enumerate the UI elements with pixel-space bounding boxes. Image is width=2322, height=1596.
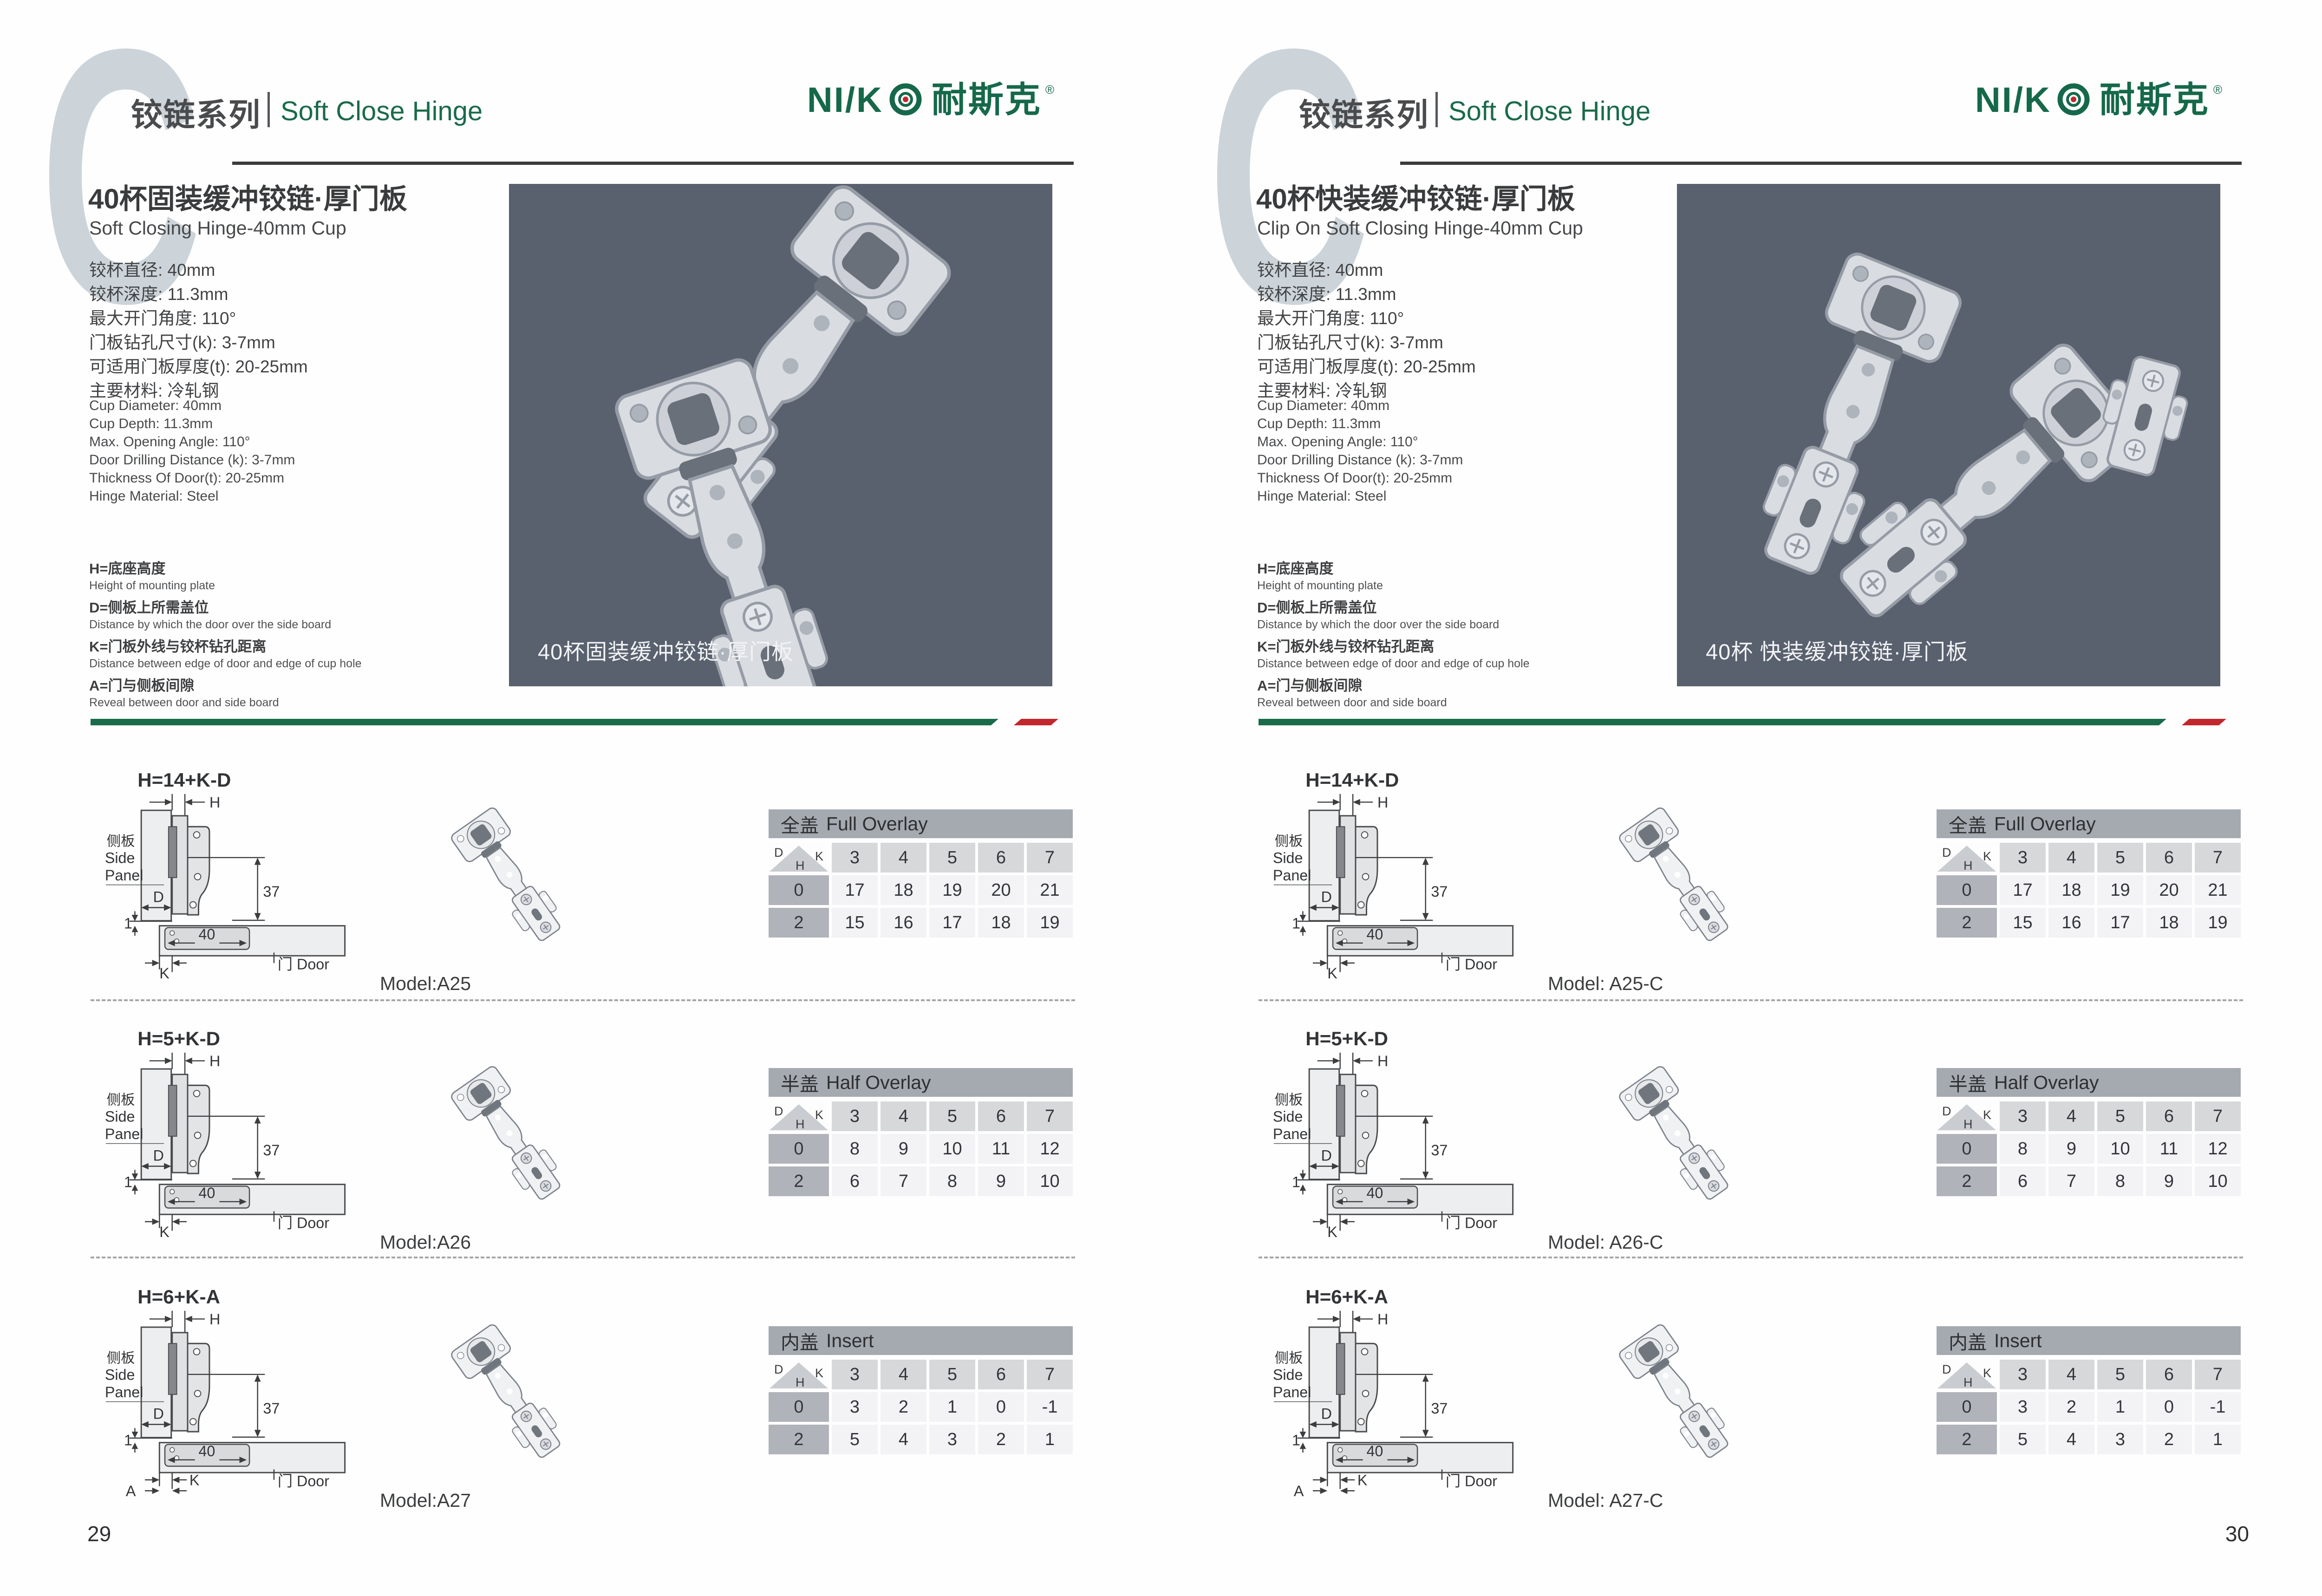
k-column-header: 6 bbox=[978, 1101, 1024, 1131]
svg-text:K: K bbox=[159, 965, 170, 982]
svg-text:K: K bbox=[1983, 849, 1991, 863]
overlay-value-cell: 16 bbox=[881, 908, 926, 938]
mounting-diagram: H=14+K-D H 侧板 Side Panel 37 D 1 bbox=[1261, 769, 1535, 982]
corner-cell: D K H bbox=[1937, 1101, 1997, 1131]
overlay-value-cell: 8 bbox=[832, 1134, 878, 1164]
hinge-illustration bbox=[385, 1288, 618, 1479]
logo-target-icon bbox=[2057, 83, 2090, 116]
overlay-value-cell: -1 bbox=[1027, 1392, 1073, 1422]
svg-text:K: K bbox=[815, 849, 823, 863]
overlay-value-cell: 18 bbox=[2048, 875, 2094, 905]
hinge-illustration bbox=[385, 1030, 618, 1220]
overlay-table: 全盖 Full Overlay D K H 345670171819202121… bbox=[1937, 809, 2241, 938]
overlay-value-cell: 11 bbox=[978, 1134, 1024, 1164]
spec-line-zh: 铰杯深度: 11.3mm bbox=[89, 282, 308, 306]
legend-en: Height of mounting plate bbox=[89, 579, 362, 593]
hinge-variant-section: H=14+K-D H 侧板 Side Panel 37 D 1 bbox=[0, 769, 1168, 1027]
overlay-title-zh: 半盖 bbox=[1949, 1068, 1987, 1096]
overlay-value-cell: 3 bbox=[832, 1392, 878, 1422]
overlay-title-zh: 内盖 bbox=[781, 1327, 819, 1355]
svg-text:H: H bbox=[209, 1053, 220, 1069]
k-column-header: 6 bbox=[2146, 843, 2192, 873]
k-column-header: 5 bbox=[2097, 843, 2143, 873]
section-divider bbox=[1259, 1257, 2243, 1258]
overlay-value-cell: 8 bbox=[2000, 1134, 2046, 1164]
svg-text:门 Door: 门 Door bbox=[278, 1473, 329, 1490]
k-column-header: 3 bbox=[2000, 843, 2046, 873]
product-title-en: Clip On Soft Closing Hinge-40mm Cup bbox=[1257, 217, 1583, 239]
h-row-header: 2 bbox=[769, 908, 829, 938]
overlay-table: 半盖 Half Overlay D K H 345670891011122678… bbox=[769, 1068, 1073, 1196]
svg-text:D: D bbox=[1942, 846, 1951, 860]
overlay-title-en: Full Overlay bbox=[1994, 813, 2096, 835]
photo-caption: 40杯 快装缓冲铰链·厚门板 bbox=[1706, 634, 1968, 666]
spec-line-zh: 最大开门角度: 110° bbox=[89, 306, 308, 331]
spec-line-zh: 铰杯深度: 11.3mm bbox=[1257, 282, 1476, 306]
hinge-graphic bbox=[450, 1065, 573, 1209]
svg-text:H: H bbox=[796, 859, 805, 873]
svg-text:1: 1 bbox=[124, 1432, 132, 1449]
svg-text:Panel: Panel bbox=[105, 1126, 143, 1142]
svg-text:H: H bbox=[1377, 1053, 1388, 1069]
corner-cell: D K H bbox=[769, 1360, 829, 1389]
overlay-table: 内盖 Insert D K H 3456703210-1254321 bbox=[769, 1326, 1073, 1454]
overlay-value-cell: 15 bbox=[832, 908, 878, 938]
overlay-table-grid: D K H 3456703210-1254321 bbox=[1937, 1360, 2241, 1454]
catalog-page-left: C 铰链系列 Soft Close Hinge NI/K 耐斯克 ® 40杯固装… bbox=[0, 0, 1168, 1596]
svg-text:D: D bbox=[1942, 1362, 1951, 1376]
h-row-header: 0 bbox=[769, 1134, 829, 1164]
legend-en: Reveal between door and side board bbox=[89, 696, 362, 710]
overlay-value-cell: 19 bbox=[929, 875, 975, 905]
legend-en: Distance between edge of door and edge o… bbox=[89, 657, 362, 671]
overlay-value-cell: 5 bbox=[832, 1425, 878, 1454]
mounting-diagram: H=5+K-D H 侧板 Side Panel 37 D 1 bbox=[1261, 1027, 1535, 1241]
overlay-value-cell: 11 bbox=[2146, 1134, 2192, 1164]
svg-text:37: 37 bbox=[263, 1400, 280, 1417]
spec-line-zh: 最大开门角度: 110° bbox=[1257, 306, 1476, 331]
diagram-formula: H=6+K-A bbox=[1305, 1286, 1388, 1308]
overlay-value-cell: 2 bbox=[881, 1392, 926, 1422]
svg-text:侧板: 侧板 bbox=[1275, 1092, 1303, 1107]
hinge-variant-section: H=5+K-D H 侧板 Side Panel 37 D 1 bbox=[0, 1027, 1168, 1286]
svg-text:K: K bbox=[1357, 1472, 1368, 1489]
k-column-header: 7 bbox=[1027, 1101, 1073, 1131]
specs-zh: 铰杯直径: 40mm铰杯深度: 11.3mm最大开门角度: 110°门板钻孔尺寸… bbox=[89, 258, 308, 403]
k-column-header: 4 bbox=[2048, 1101, 2094, 1131]
nisko-logo: NI/K 耐斯克 ® bbox=[807, 83, 1054, 118]
h-row-header: 2 bbox=[769, 1425, 829, 1454]
svg-text:H: H bbox=[1963, 1117, 1973, 1131]
overlay-value-cell: 8 bbox=[2097, 1166, 2143, 1196]
series-title-zh: 铰链系列 bbox=[1299, 89, 1429, 135]
svg-text:37: 37 bbox=[1431, 1142, 1448, 1159]
svg-text:A: A bbox=[1294, 1483, 1304, 1499]
h-row-header: 2 bbox=[769, 1166, 829, 1196]
h-row-header: 2 bbox=[1937, 1166, 1997, 1196]
svg-text:Side: Side bbox=[1273, 1108, 1303, 1125]
overlay-value-cell: 20 bbox=[978, 875, 1024, 905]
k-column-header: 3 bbox=[832, 843, 878, 873]
h-row-header: 0 bbox=[769, 1392, 829, 1422]
hinge-illustration bbox=[1553, 1288, 1786, 1479]
overlay-value-cell: 4 bbox=[2048, 1425, 2094, 1454]
overlay-title-en: Insert bbox=[826, 1330, 874, 1352]
spec-line-en: Door Drilling Distance (k): 3-7mm bbox=[89, 451, 295, 469]
spec-line-zh: 铰杯直径: 40mm bbox=[1257, 258, 1476, 282]
overlay-value-cell: 0 bbox=[978, 1392, 1024, 1422]
logo-chinese: 耐斯克 bbox=[932, 83, 1042, 118]
svg-text:侧板: 侧板 bbox=[107, 1350, 135, 1366]
svg-text:K: K bbox=[159, 1224, 170, 1240]
svg-text:H: H bbox=[1377, 794, 1388, 811]
k-column-header: 3 bbox=[832, 1360, 878, 1389]
overlay-value-cell: 15 bbox=[2000, 908, 2046, 938]
svg-text:Side: Side bbox=[1273, 850, 1303, 866]
photo-hinges bbox=[509, 184, 1052, 686]
overlay-value-cell: 10 bbox=[2195, 1166, 2241, 1196]
svg-text:K: K bbox=[1983, 1108, 1991, 1122]
overlay-table-title: 全盖 Full Overlay bbox=[1937, 809, 2241, 838]
overlay-value-cell: 1 bbox=[2195, 1425, 2241, 1454]
overlay-table-title: 内盖 Insert bbox=[1937, 1326, 2241, 1355]
k-column-header: 3 bbox=[832, 1101, 878, 1131]
svg-text:门 Door: 门 Door bbox=[1446, 956, 1497, 973]
overlay-value-cell: 3 bbox=[2097, 1425, 2143, 1454]
overlay-value-cell: 17 bbox=[832, 875, 878, 905]
svg-text:K: K bbox=[1983, 1366, 1991, 1380]
spec-line-zh: 可适用门板厚度(t): 20-25mm bbox=[89, 355, 308, 379]
dimension-legend: H=底座高度 Height of mounting plate D=侧板上所需盖… bbox=[89, 559, 362, 715]
legend-en: Height of mounting plate bbox=[1257, 579, 1530, 593]
svg-text:37: 37 bbox=[263, 883, 280, 900]
spec-line-en: Thickness Of Door(t): 20-25mm bbox=[1257, 469, 1463, 487]
svg-text:Side: Side bbox=[1273, 1367, 1303, 1383]
series-title-en: Soft Close Hinge bbox=[280, 96, 483, 127]
svg-text:37: 37 bbox=[263, 1142, 280, 1159]
overlay-title-zh: 全盖 bbox=[781, 810, 819, 838]
k-column-header: 6 bbox=[978, 1360, 1024, 1389]
spec-line-en: Cup Depth: 11.3mm bbox=[89, 415, 295, 433]
hinge-variant-section: H=6+K-A H 侧板 Side Panel 37 D 1 bbox=[0, 1285, 1168, 1544]
overlay-value-cell: 21 bbox=[2195, 875, 2241, 905]
corner-cell: D K H bbox=[769, 1101, 829, 1131]
specs-en: Cup Diameter: 40mmCup Depth: 11.3mmMax. … bbox=[1257, 397, 1463, 505]
diagram-formula: H=14+K-D bbox=[137, 769, 231, 791]
overlay-value-cell: 19 bbox=[2195, 908, 2241, 938]
overlay-value-cell: 10 bbox=[929, 1134, 975, 1164]
legend-zh: K=门板外线与铰杯钻孔距离 bbox=[1257, 637, 1530, 657]
spec-line-en: Door Drilling Distance (k): 3-7mm bbox=[1257, 451, 1463, 469]
table-corner-key: D K H bbox=[1937, 1360, 1997, 1389]
legend-item: K=门板外线与铰杯钻孔距离 Distance between edge of d… bbox=[1257, 637, 1530, 671]
mounting-plate-graphic bbox=[2092, 352, 2196, 481]
overlay-table-grid: D K H 345670891011122678910 bbox=[1937, 1101, 2241, 1196]
svg-text:Side: Side bbox=[105, 1108, 135, 1125]
diagram-formula: H=5+K-D bbox=[1305, 1028, 1388, 1049]
product-title-zh: 40杯固装缓冲铰链·厚门板 bbox=[88, 176, 407, 217]
svg-text:K: K bbox=[1327, 965, 1337, 982]
h-row-header: 0 bbox=[1937, 875, 1997, 905]
model-label: Model: A27-C bbox=[1548, 1490, 1663, 1511]
registered-mark: ® bbox=[1045, 84, 1054, 96]
overlay-table-grid: D K H 3456703210-1254321 bbox=[769, 1360, 1073, 1454]
overlay-value-cell: 9 bbox=[978, 1166, 1024, 1196]
hinge-graphic bbox=[1618, 806, 1741, 950]
overlay-value-cell: 1 bbox=[2097, 1392, 2143, 1422]
svg-text:侧板: 侧板 bbox=[107, 1092, 135, 1107]
svg-text:40: 40 bbox=[1366, 926, 1383, 943]
k-column-header: 7 bbox=[2195, 1360, 2241, 1389]
svg-text:H: H bbox=[1963, 1375, 1973, 1389]
svg-text:D: D bbox=[1942, 1104, 1951, 1118]
k-column-header: 4 bbox=[881, 1360, 926, 1389]
legend-zh: K=门板外线与铰杯钻孔距离 bbox=[89, 637, 362, 657]
svg-text:H: H bbox=[1963, 859, 1973, 873]
overlay-title-en: Full Overlay bbox=[826, 813, 928, 835]
overlay-value-cell: 21 bbox=[1027, 875, 1073, 905]
overlay-value-cell: 7 bbox=[2048, 1166, 2094, 1196]
legend-zh: D=侧板上所需盖位 bbox=[89, 598, 362, 618]
k-column-header: 4 bbox=[881, 1101, 926, 1131]
svg-text:H: H bbox=[796, 1117, 805, 1131]
overlay-value-cell: 1 bbox=[1027, 1425, 1073, 1454]
overlay-title-en: Insert bbox=[1994, 1330, 2042, 1352]
svg-text:D: D bbox=[1321, 889, 1332, 905]
section-divider bbox=[1259, 999, 2243, 1001]
overlay-table: 内盖 Insert D K H 3456703210-1254321 bbox=[1937, 1326, 2241, 1454]
k-column-header: 5 bbox=[929, 1101, 975, 1131]
svg-text:Side: Side bbox=[105, 1367, 135, 1383]
logo-wordmark: NI/K bbox=[1975, 83, 2051, 118]
k-column-header: 5 bbox=[929, 843, 975, 873]
svg-text:Panel: Panel bbox=[1273, 1126, 1311, 1142]
k-column-header: 4 bbox=[2048, 1360, 2094, 1389]
k-column-header: 7 bbox=[1027, 1360, 1073, 1389]
k-column-header: 4 bbox=[881, 843, 926, 873]
accent-divider-red bbox=[1014, 719, 1058, 725]
spec-line-zh: 铰杯直径: 40mm bbox=[89, 258, 308, 282]
svg-text:侧板: 侧板 bbox=[107, 833, 135, 849]
legend-item: A=门与侧板间隙 Reveal between door and side bo… bbox=[1257, 676, 1530, 710]
corner-cell: D K H bbox=[769, 843, 829, 873]
table-corner-key: D K H bbox=[769, 1360, 829, 1389]
diagram-formula: H=5+K-D bbox=[137, 1028, 220, 1049]
svg-text:H: H bbox=[209, 794, 220, 811]
hinge-illustration bbox=[1553, 771, 1786, 962]
overlay-value-cell: 9 bbox=[2048, 1134, 2094, 1164]
specs-zh: 铰杯直径: 40mm铰杯深度: 11.3mm最大开门角度: 110°门板钻孔尺寸… bbox=[1257, 258, 1476, 403]
overlay-table: 全盖 Full Overlay D K H 345670171819202121… bbox=[769, 809, 1073, 938]
overlay-table-title: 半盖 Half Overlay bbox=[769, 1068, 1073, 1097]
k-column-header: 6 bbox=[978, 843, 1024, 873]
svg-text:Panel: Panel bbox=[105, 1384, 143, 1401]
spec-line-zh: 门板钻孔尺寸(k): 3-7mm bbox=[1257, 331, 1476, 355]
diagram-formula: H=14+K-D bbox=[1305, 769, 1399, 791]
logo-wordmark: NI/K bbox=[807, 83, 883, 118]
overlay-value-cell: 2 bbox=[2146, 1425, 2192, 1454]
legend-zh: D=侧板上所需盖位 bbox=[1257, 598, 1530, 618]
overlay-title-en: Half Overlay bbox=[1994, 1072, 2099, 1094]
legend-en: Distance by which the door over the side… bbox=[89, 618, 362, 632]
svg-text:H: H bbox=[796, 1375, 805, 1389]
svg-text:Panel: Panel bbox=[1273, 1384, 1311, 1401]
k-column-header: 3 bbox=[2000, 1101, 2046, 1131]
svg-text:H: H bbox=[209, 1311, 220, 1328]
page-number: 30 bbox=[2225, 1521, 2249, 1546]
accent-divider-red bbox=[2182, 719, 2226, 725]
corner-cell: D K H bbox=[1937, 843, 1997, 873]
svg-text:40: 40 bbox=[198, 1443, 215, 1459]
legend-zh: H=底座高度 bbox=[1257, 559, 1530, 579]
overlay-value-cell: 18 bbox=[881, 875, 926, 905]
spec-line-zh: 门板钻孔尺寸(k): 3-7mm bbox=[89, 331, 308, 355]
legend-en: Distance between edge of door and edge o… bbox=[1257, 657, 1530, 671]
k-column-header: 6 bbox=[2146, 1360, 2192, 1389]
mounting-diagram: H=5+K-D H 侧板 Side Panel 37 D 1 bbox=[93, 1027, 367, 1241]
svg-text:K: K bbox=[815, 1108, 823, 1122]
header-rule bbox=[1400, 162, 2242, 165]
spec-line-en: Hinge Material: Steel bbox=[89, 487, 295, 505]
hinge-variant-section: H=5+K-D H 侧板 Side Panel 37 D 1 bbox=[1168, 1027, 2322, 1286]
model-label: Model:A27 bbox=[380, 1490, 471, 1511]
logo-target-icon bbox=[889, 83, 922, 116]
hinge-graphic bbox=[450, 1323, 573, 1467]
spec-line-en: Max. Opening Angle: 110° bbox=[1257, 433, 1463, 451]
svg-text:D: D bbox=[153, 1406, 164, 1422]
hinge-graphic bbox=[610, 184, 955, 565]
mounting-diagram: H=6+K-A H 侧板 Side Panel 37 D 1 bbox=[1261, 1285, 1535, 1499]
spec-line-zh: 可适用门板厚度(t): 20-25mm bbox=[1257, 355, 1476, 379]
overlay-value-cell: 17 bbox=[929, 908, 975, 938]
svg-text:40: 40 bbox=[1366, 1185, 1383, 1201]
section-divider bbox=[91, 999, 1075, 1001]
series-divider-bar bbox=[1435, 92, 1438, 127]
overlay-value-cell: 2 bbox=[978, 1425, 1024, 1454]
model-label: Model:A26 bbox=[380, 1231, 471, 1253]
svg-text:门 Door: 门 Door bbox=[1446, 1215, 1497, 1231]
model-label: Model: A25-C bbox=[1548, 973, 1663, 995]
specs-en: Cup Diameter: 40mmCup Depth: 11.3mmMax. … bbox=[89, 397, 295, 505]
hinge-variant-section: H=6+K-A H 侧板 Side Panel 37 D 1 bbox=[1168, 1285, 2322, 1544]
overlay-value-cell: 3 bbox=[929, 1425, 975, 1454]
hinge-graphic bbox=[1618, 1323, 1741, 1467]
svg-text:40: 40 bbox=[1366, 1443, 1383, 1459]
overlay-table-title: 半盖 Half Overlay bbox=[1937, 1068, 2241, 1097]
dimension-legend: H=底座高度 Height of mounting plate D=侧板上所需盖… bbox=[1257, 559, 1530, 715]
overlay-value-cell: 6 bbox=[832, 1166, 878, 1196]
overlay-value-cell: 20 bbox=[2146, 875, 2192, 905]
svg-text:Panel: Panel bbox=[1273, 867, 1311, 884]
svg-text:K: K bbox=[189, 1472, 200, 1489]
table-corner-key: D K H bbox=[769, 1101, 829, 1131]
overlay-value-cell: -1 bbox=[2195, 1392, 2241, 1422]
header-rule bbox=[232, 162, 1074, 165]
svg-text:1: 1 bbox=[1292, 915, 1300, 932]
legend-en: Reveal between door and side board bbox=[1257, 696, 1530, 710]
model-label: Model:A25 bbox=[380, 973, 471, 995]
svg-text:1: 1 bbox=[1292, 1432, 1300, 1449]
spec-line-en: Thickness Of Door(t): 20-25mm bbox=[89, 469, 295, 487]
registered-mark: ® bbox=[2213, 84, 2222, 96]
spec-line-en: Cup Depth: 11.3mm bbox=[1257, 415, 1463, 433]
svg-text:1: 1 bbox=[124, 1174, 132, 1191]
h-row-header: 0 bbox=[1937, 1392, 1997, 1422]
svg-text:Panel: Panel bbox=[105, 867, 143, 884]
k-column-header: 7 bbox=[1027, 843, 1073, 873]
overlay-value-cell: 12 bbox=[1027, 1134, 1073, 1164]
hinge-graphic bbox=[450, 806, 573, 950]
logo-chinese: 耐斯克 bbox=[2100, 83, 2210, 118]
hinge-variant-section: H=14+K-D H 侧板 Side Panel 37 D 1 bbox=[1168, 769, 2322, 1027]
product-photo: 40杯固装缓冲铰链·厚门板 bbox=[509, 184, 1052, 686]
svg-text:H: H bbox=[1377, 1311, 1388, 1328]
legend-item: D=侧板上所需盖位 Distance by which the door ove… bbox=[1257, 598, 1530, 632]
diagram-formula: H=6+K-A bbox=[137, 1286, 220, 1308]
overlay-table-grid: D K H 345670891011122678910 bbox=[769, 1101, 1073, 1196]
svg-text:40: 40 bbox=[198, 1185, 215, 1201]
k-column-header: 6 bbox=[2146, 1101, 2192, 1131]
overlay-value-cell: 7 bbox=[881, 1166, 926, 1196]
k-column-header: 5 bbox=[2097, 1101, 2143, 1131]
table-corner-key: D K H bbox=[769, 843, 829, 873]
nisko-logo: NI/K 耐斯克 ® bbox=[1975, 83, 2222, 118]
overlay-title-zh: 内盖 bbox=[1949, 1327, 1987, 1355]
overlay-value-cell: 4 bbox=[881, 1425, 926, 1454]
overlay-value-cell: 3 bbox=[2000, 1392, 2046, 1422]
svg-text:D: D bbox=[774, 1104, 783, 1118]
series-title-zh: 铰链系列 bbox=[131, 89, 261, 135]
overlay-table-title: 内盖 Insert bbox=[769, 1326, 1073, 1355]
catalog-page-right: C 铰链系列 Soft Close Hinge NI/K 耐斯克 ® 40杯快装… bbox=[1168, 0, 2322, 1596]
spec-line-en: Max. Opening Angle: 110° bbox=[89, 433, 295, 451]
hinge-illustration bbox=[385, 771, 618, 962]
mounting-diagram: H=6+K-A H 侧板 Side Panel 37 D 1 bbox=[93, 1285, 367, 1499]
svg-text:D: D bbox=[774, 846, 783, 860]
hinge-illustration bbox=[1553, 1030, 1786, 1220]
svg-text:D: D bbox=[774, 1362, 783, 1376]
hinge-graphic bbox=[1618, 1065, 1741, 1209]
h-row-header: 2 bbox=[1937, 908, 1997, 938]
product-title-en: Soft Closing Hinge-40mm Cup bbox=[89, 217, 346, 239]
model-label: Model: A26-C bbox=[1548, 1231, 1663, 1253]
svg-text:门 Door: 门 Door bbox=[1446, 1473, 1497, 1490]
product-photo: 40杯 快装缓冲铰链·厚门板 bbox=[1677, 184, 2220, 686]
overlay-title-zh: 全盖 bbox=[1949, 810, 1987, 838]
overlay-value-cell: 16 bbox=[2048, 908, 2094, 938]
svg-text:门 Door: 门 Door bbox=[278, 956, 329, 973]
svg-text:D: D bbox=[1321, 1147, 1332, 1164]
svg-text:D: D bbox=[1321, 1406, 1332, 1422]
k-column-header: 5 bbox=[929, 1360, 975, 1389]
svg-text:侧板: 侧板 bbox=[1275, 833, 1303, 849]
corner-cell: D K H bbox=[1937, 1360, 1997, 1389]
overlay-value-cell: 18 bbox=[978, 908, 1024, 938]
k-column-header: 3 bbox=[2000, 1360, 2046, 1389]
table-corner-key: D K H bbox=[1937, 1101, 1997, 1131]
svg-text:A: A bbox=[126, 1483, 136, 1499]
overlay-value-cell: 2 bbox=[2048, 1392, 2094, 1422]
h-row-header: 0 bbox=[1937, 1134, 1997, 1164]
overlay-value-cell: 5 bbox=[2000, 1425, 2046, 1454]
k-column-header: 4 bbox=[2048, 843, 2094, 873]
page-number: 29 bbox=[87, 1521, 111, 1546]
svg-text:K: K bbox=[815, 1366, 823, 1380]
svg-text:D: D bbox=[153, 889, 164, 905]
k-column-header: 7 bbox=[2195, 1101, 2241, 1131]
spec-line-en: Cup Diameter: 40mm bbox=[89, 397, 295, 415]
overlay-title-zh: 半盖 bbox=[781, 1068, 819, 1096]
